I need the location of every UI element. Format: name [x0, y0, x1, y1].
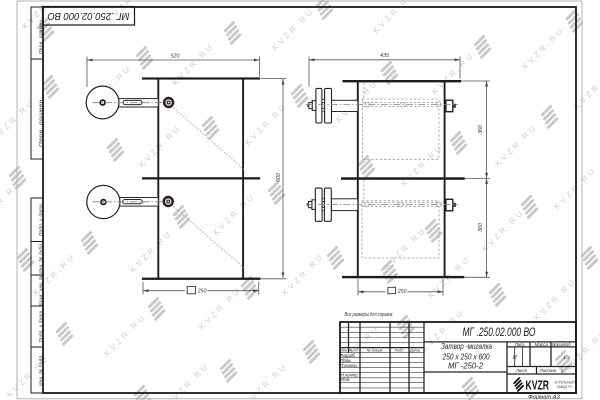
svg-text:250: 250	[397, 289, 407, 295]
svg-text:KVZR.RU: KVZR.RU	[280, 251, 326, 297]
svg-text:Лит.: Лит.	[514, 342, 526, 347]
svg-text:Изм: Изм	[340, 348, 347, 352]
svg-text:МГ .250.02.000 ВО: МГ .250.02.000 ВО	[463, 325, 536, 339]
svg-text:Пров.: Пров.	[341, 358, 352, 363]
svg-text:Затвор -мигалка: Затвор -мигалка	[441, 342, 492, 351]
svg-text:KVZR.RU: KVZR.RU	[165, 361, 211, 400]
svg-text:KVZR.RU: KVZR.RU	[211, 191, 257, 237]
svg-text:250: 250	[197, 288, 207, 294]
svg-text:KVZR.RU: KVZR.RU	[371, 0, 417, 35]
svg-text:KVZR.RU: KVZR.RU	[493, 122, 539, 168]
svg-text:Лист: Лист	[348, 348, 359, 352]
svg-text:Подп.: Подп.	[394, 348, 404, 352]
svg-text:Лист: Лист	[515, 368, 528, 373]
svg-text:Листов: Листов	[539, 368, 557, 373]
svg-text:Подп. и дата: Подп. и дата	[38, 310, 43, 342]
svg-text:KVZR.RU: KVZR.RU	[270, 6, 316, 52]
svg-text:435: 435	[380, 53, 389, 59]
svg-text:1:4: 1:4	[563, 355, 570, 361]
svg-text:Утв.: Утв.	[341, 377, 351, 382]
svg-text:Дата: Дата	[409, 348, 420, 352]
svg-text:360: 360	[478, 125, 484, 134]
svg-text:Подп. и дата: Подп. и дата	[38, 204, 43, 236]
svg-text:250 х 250 х 600: 250 х 250 х 600	[442, 353, 490, 362]
svg-text:Т.контр.: Т.контр.	[341, 363, 358, 368]
svg-text:KVZR: KVZR	[526, 378, 550, 392]
svg-text:Масштаб: Масштаб	[552, 342, 571, 347]
svg-text:KVZR.RU: KVZR.RU	[520, 25, 566, 71]
svg-text:МГ .250.02.000 ВО: МГ .250.02.000 ВО	[48, 10, 130, 22]
svg-text:KVZR.RU: KVZR.RU	[243, 101, 289, 147]
svg-text:№ докум.: № докум.	[367, 348, 384, 352]
svg-text:KVZR.RU: KVZR.RU	[170, 41, 216, 87]
svg-text:KVZR.RU: KVZR.RU	[137, 123, 183, 169]
svg-text:ЗАВОД РУ: ЗАВОД РУ	[557, 385, 574, 389]
svg-text:520: 520	[171, 53, 180, 59]
svg-text:Перв. примен.: Перв. примен.	[38, 18, 43, 54]
svg-text:МГ -250-2: МГ -250-2	[448, 362, 484, 371]
svg-text:KVZR.RU: KVZR.RU	[102, 312, 148, 358]
svg-text:Все размеры для справок: Все размеры для справок	[345, 312, 393, 318]
svg-text:Инв. № дубл.: Инв. № дубл.	[38, 242, 43, 273]
svg-text:Формат А3: Формат А3	[528, 394, 560, 400]
svg-text:360: 360	[478, 223, 484, 232]
svg-text:Инв. № подл.: Инв. № подл.	[38, 354, 43, 386]
svg-text:KVZR.RU: KVZR.RU	[399, 142, 445, 188]
svg-text:KVZR.RU: KVZR.RU	[532, 276, 578, 322]
svg-text:KVZR.RU: KVZR.RU	[430, 50, 476, 96]
svg-text:Масса: Масса	[535, 342, 549, 347]
svg-text:KVZR.RU: KVZR.RU	[243, 361, 289, 400]
svg-text:КОТЕЛЬНЫЙ: КОТЕЛЬНЫЙ	[555, 381, 576, 385]
svg-text:600: 600	[276, 173, 282, 182]
svg-text:Взам. инв. №: Взам. инв. №	[38, 275, 43, 306]
svg-text:KVZR.RU: KVZR.RU	[480, 207, 526, 253]
svg-text:KVZR.RU: KVZR.RU	[128, 228, 174, 274]
svg-text:И: И	[513, 355, 517, 361]
svg-text:Перв. примен.: Перв. примен.	[38, 97, 43, 147]
